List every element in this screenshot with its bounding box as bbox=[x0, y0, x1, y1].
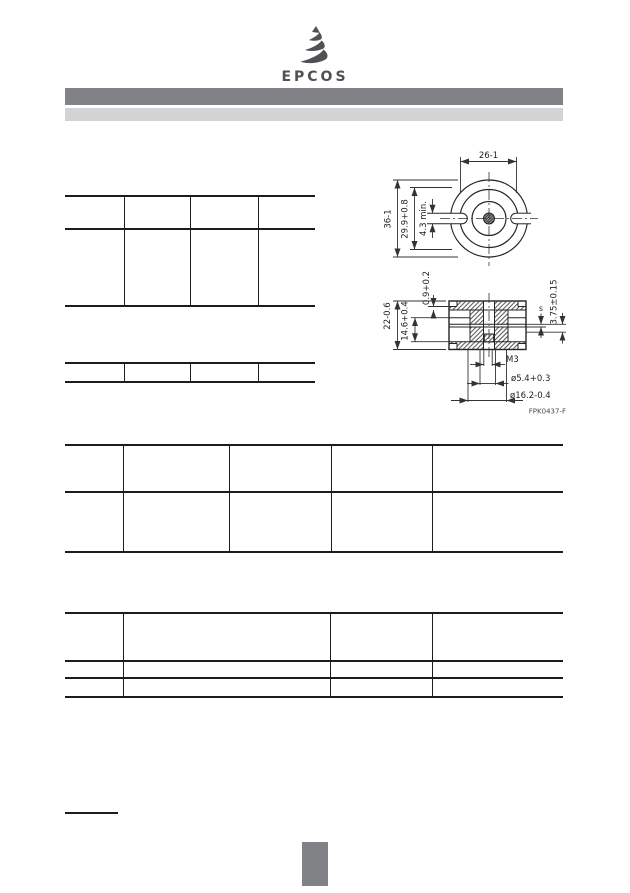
table-row bbox=[65, 660, 563, 677]
table-cell bbox=[330, 662, 432, 677]
table-cell bbox=[123, 493, 229, 551]
table-cell bbox=[124, 197, 190, 228]
dim-label-notch-width: 26-1 bbox=[479, 151, 498, 161]
table-cell bbox=[432, 493, 563, 551]
table-cell bbox=[65, 662, 123, 677]
dim-label-outer-diameter: 36-1 bbox=[384, 209, 394, 228]
table-row bbox=[65, 228, 315, 305]
table-row bbox=[65, 364, 315, 381]
table-cell bbox=[123, 446, 229, 491]
thread-label: M3 bbox=[506, 355, 519, 365]
core-top-view: 26-1 36-1 29.9+0.8 4.3 min. bbox=[384, 151, 539, 266]
core-section-view: 22-0.6 14.6+0.4 0.9+0.2 s 3.75±0.15 bbox=[383, 271, 566, 416]
table-cell bbox=[330, 614, 432, 660]
footnote-rule bbox=[65, 812, 118, 814]
table-cell bbox=[190, 364, 258, 381]
table-cell bbox=[124, 230, 190, 305]
dim-label-depth: 3.75±0.15 bbox=[550, 280, 560, 325]
table-row bbox=[65, 446, 563, 491]
table-cell bbox=[432, 679, 563, 696]
table-cell bbox=[432, 614, 563, 660]
table-cell bbox=[123, 614, 330, 660]
table-cell bbox=[229, 446, 331, 491]
table-row bbox=[65, 491, 563, 551]
table-cell bbox=[65, 679, 123, 696]
dim-label-height: 22-0.6 bbox=[383, 302, 393, 329]
spec-table-middle bbox=[65, 444, 563, 553]
epcos-logo-text: EPCOS bbox=[0, 69, 630, 85]
table-cell bbox=[331, 493, 432, 551]
table-cell bbox=[258, 197, 315, 228]
title-bar-secondary bbox=[65, 108, 563, 121]
table-cell bbox=[258, 230, 315, 305]
table-row bbox=[65, 614, 563, 660]
table-cell bbox=[65, 446, 123, 491]
table-cell bbox=[258, 364, 315, 381]
dim-label-hole-diameter: ø5.4+0.3 bbox=[511, 374, 550, 384]
table-cell bbox=[432, 662, 563, 677]
spec-table-bottom bbox=[65, 612, 563, 698]
table-cell bbox=[432, 446, 563, 491]
dim-label-center-diameter: ø16.2-0.4 bbox=[510, 391, 551, 401]
table-cell bbox=[65, 493, 123, 551]
table-cell bbox=[190, 230, 258, 305]
table-cell bbox=[123, 662, 330, 677]
title-bar-primary bbox=[65, 88, 563, 105]
dim-label-gap: s bbox=[539, 304, 543, 313]
spec-table-top-small bbox=[65, 362, 315, 383]
epcos-logo-mark bbox=[297, 26, 333, 68]
table-cell bbox=[65, 614, 123, 660]
table-cell bbox=[65, 230, 124, 305]
table-row bbox=[65, 677, 563, 696]
dim-label-slot: 4.3 min. bbox=[419, 201, 429, 236]
table-row bbox=[65, 197, 315, 228]
epcos-logo: EPCOS bbox=[0, 26, 630, 85]
table-cell bbox=[123, 679, 330, 696]
page-number-box bbox=[302, 842, 328, 886]
dim-label-rim-step: 0.9+0.2 bbox=[422, 271, 432, 305]
table-cell bbox=[229, 493, 331, 551]
table-cell bbox=[65, 364, 124, 381]
table-cell bbox=[331, 446, 432, 491]
table-cell bbox=[124, 364, 190, 381]
figure-code: FPK0437-F bbox=[529, 408, 566, 416]
dim-label-inner-diameter: 29.9+0.8 bbox=[401, 199, 411, 239]
dim-label-slot-width: 14.6+0.4 bbox=[401, 301, 411, 341]
datasheet-page: EPCOS bbox=[0, 0, 630, 893]
spec-table-top bbox=[65, 195, 315, 307]
table-cell bbox=[190, 197, 258, 228]
table-cell bbox=[65, 197, 124, 228]
technical-drawing: 26-1 36-1 29.9+0.8 4.3 min. bbox=[378, 140, 582, 425]
table-cell bbox=[330, 679, 432, 696]
